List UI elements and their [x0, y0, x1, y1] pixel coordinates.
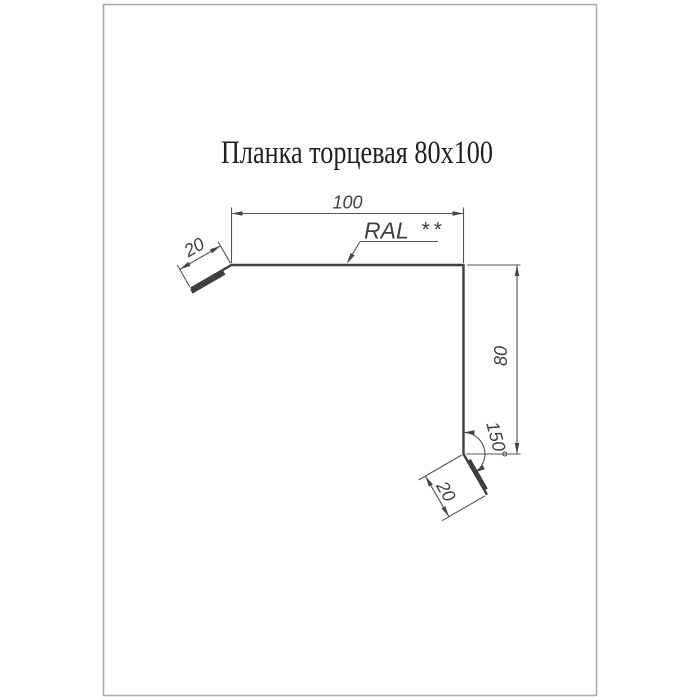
dim-height-label: 80: [491, 346, 511, 366]
coating-label: RAL **: [364, 218, 445, 244]
coating-label-note: **: [421, 219, 445, 242]
coating-label-text: RAL: [364, 218, 408, 244]
drawing-sheet: Планка торцевая 80x100: [0, 0, 700, 700]
dim-width-label: 100: [332, 193, 362, 213]
page-title: Планка торцевая 80x100: [221, 135, 493, 171]
page: [104, 5, 597, 696]
